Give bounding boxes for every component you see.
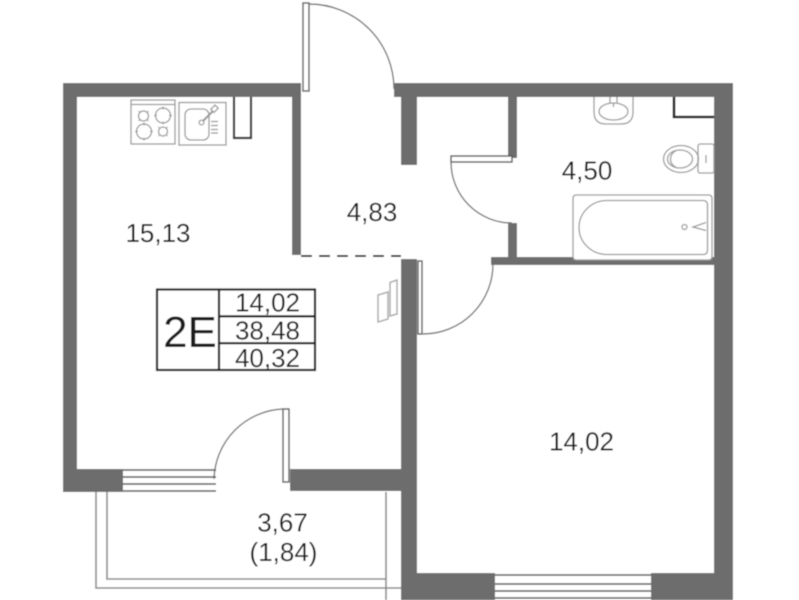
svg-text:4,83: 4,83 — [347, 197, 398, 227]
svg-text:40,32: 40,32 — [235, 343, 300, 373]
svg-text:2Е: 2Е — [163, 308, 217, 357]
svg-text:3,67: 3,67 — [257, 508, 308, 538]
svg-text:14,02: 14,02 — [549, 427, 614, 457]
svg-text:14,02: 14,02 — [235, 288, 300, 318]
svg-text:4,50: 4,50 — [562, 156, 613, 186]
svg-text:38,48: 38,48 — [235, 316, 300, 346]
svg-text:15,13: 15,13 — [125, 218, 190, 248]
svg-text:(1,84): (1,84) — [250, 537, 318, 567]
